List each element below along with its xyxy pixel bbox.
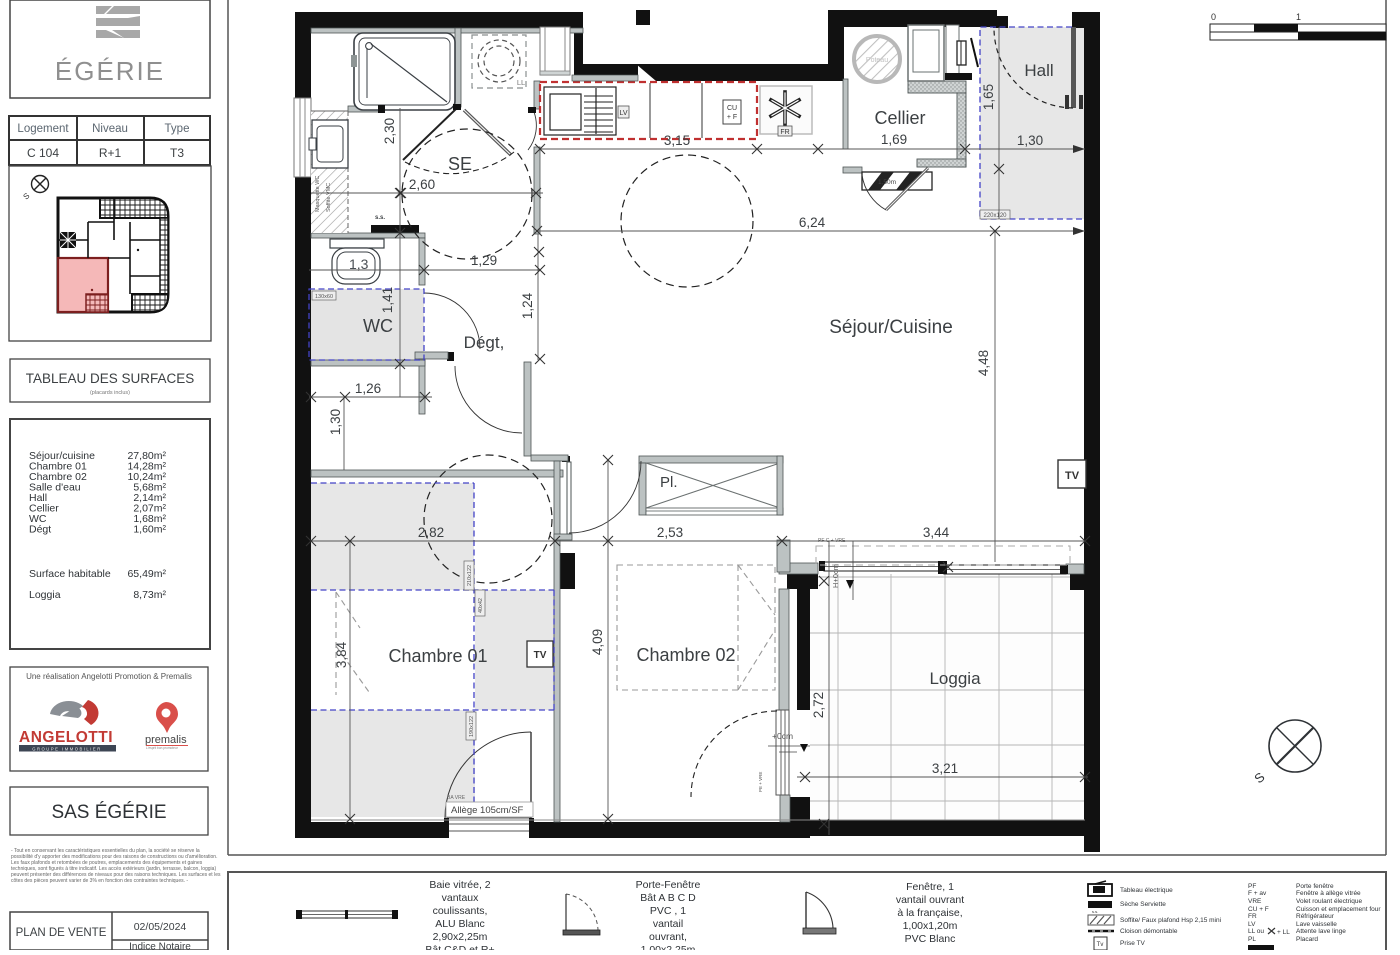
svg-text:ouvrant,: ouvrant, [649,931,687,943]
svg-text:4,48: 4,48 [976,350,991,376]
svg-text:Chambre 01: Chambre 01 [388,646,487,666]
svg-text:Pl.: Pl. [660,474,678,491]
svg-text:2,72: 2,72 [811,692,826,718]
svg-text:Lave vaisselle: Lave vaisselle [1296,921,1337,928]
svg-text:2,82: 2,82 [418,525,444,540]
svg-text:Tableau électrique: Tableau électrique [1120,887,1173,894]
svg-text:SE: SE [448,154,472,174]
svg-text:Prise TV: Prise TV [1120,940,1145,947]
svg-text:1,65: 1,65 [981,84,996,110]
svg-text:Soffite VMC: Soffite VMC [326,183,332,212]
svg-text:02/05/2024: 02/05/2024 [134,921,187,933]
svg-text:TV: TV [534,650,547,661]
svg-text:130x60: 130x60 [315,294,333,300]
svg-text:ALU Blanc: ALU Blanc [435,918,485,930]
svg-text:vantail ouvrant: vantail ouvrant [896,894,964,906]
svg-text:Poteau: Poteau [866,57,888,64]
svg-text:PF: PF [1248,883,1256,890]
svg-text:Placard: Placard [1296,936,1318,943]
svg-text:VRE: VRE [1248,898,1262,905]
svg-text:40x42: 40x42 [478,598,484,613]
svg-text:1,60m²: 1,60m² [133,524,166,536]
svg-text:PE + VRE: PE + VRE [758,772,763,792]
svg-text:Une réalisation Angelotti Prom: Une réalisation Angelotti Promotion & Pr… [26,672,192,681]
svg-text:T3: T3 [170,146,184,160]
svg-text:L'esprit bon promoteur: L'esprit bon promoteur [146,746,179,750]
svg-text:2,90x2,25m: 2,90x2,25m [433,931,488,943]
svg-text:GROUPE IMMOBILIER: GROUPE IMMOBILIER [32,747,101,752]
svg-text:ÉGÉRIE: ÉGÉRIE [55,56,165,86]
svg-text:Cellier: Cellier [874,108,925,128]
svg-text:H+0cm: H+0cm [831,564,840,588]
svg-text:Masquette WC: Masquette WC [315,176,321,212]
svg-text:Allège 105cm/SF: Allège 105cm/SF [451,805,524,816]
svg-text:Type: Type [165,123,190,135]
svg-text:PVC , 1: PVC , 1 [650,905,686,917]
svg-text:s.s.: s.s. [1092,909,1098,914]
svg-text:Logement: Logement [17,123,69,135]
svg-text:+0cm: +0cm [772,731,793,741]
svg-text:1,41: 1,41 [380,287,395,313]
svg-text:(placards inclus): (placards inclus) [90,390,130,396]
svg-text:4,09: 4,09 [590,629,605,655]
svg-text:vantaux: vantaux [442,892,480,904]
svg-text:CU: CU [727,105,737,112]
svg-text:côtes des pièces peuvent varie: côtes des pièces peuvent varier de 3% en… [11,878,188,884]
svg-text:+ LL: + LL [1277,929,1290,936]
svg-text:ANGELOTTI: ANGELOTTI [19,729,113,746]
svg-text:65,49m²: 65,49m² [127,568,166,580]
svg-text:SAS ÉGÉRIE: SAS ÉGÉRIE [51,802,166,823]
svg-text:Fenêtre, 1: Fenêtre, 1 [906,881,954,893]
svg-text:TABLEAU DES SURFACES: TABLEAU DES SURFACES [26,371,195,386]
svg-text:8,73m²: 8,73m² [133,589,166,601]
svg-text:Attente lave linge: Attente lave linge [1296,928,1346,935]
svg-text:Séjour/Cuisine: Séjour/Cuisine [829,317,953,338]
svg-text:3,84: 3,84 [334,641,349,668]
svg-text:3,44: 3,44 [923,525,950,540]
svg-text:1,00x1,20m: 1,00x1,20m [903,920,958,932]
svg-text:FR: FR [780,129,789,136]
svg-text:0: 0 [1211,12,1216,22]
svg-text:Fenêtre à allège vitrée: Fenêtre à allège vitrée [1296,890,1361,897]
svg-text:F + av: F + av [1248,890,1267,897]
svg-text:Chambre 02: Chambre 02 [636,645,735,665]
svg-text:1,26: 1,26 [355,381,381,396]
svg-text:PLAN DE VENTE: PLAN DE VENTE [16,927,107,939]
svg-text:TV: TV [1065,470,1080,482]
svg-text:PL: PL [1248,936,1256,943]
svg-text:220x120: 220x120 [983,213,1007,219]
svg-text:Dégt: Dégt [29,524,51,536]
svg-text:coulissants,: coulissants, [433,905,488,917]
svg-text:1,30: 1,30 [1017,133,1043,148]
svg-text:CU + F: CU + F [1248,906,1269,913]
svg-text:1,29: 1,29 [471,253,497,268]
svg-text:Porte fenêtre: Porte fenêtre [1296,883,1334,890]
svg-text:Hall: Hall [1024,61,1053,80]
svg-text:Indice Notaire: Indice Notaire [129,942,191,951]
svg-text:Dégt,: Dégt, [464,333,505,352]
svg-text:R+1: R+1 [99,146,122,160]
svg-text:Cloison démontable: Cloison démontable [1120,928,1178,935]
svg-text:210x122: 210x122 [467,565,473,586]
svg-text:Baie vitrée, 2: Baie vitrée, 2 [429,879,490,891]
svg-text:Tv: Tv [1097,942,1104,948]
svg-text:1,00x2,25m: 1,00x2,25m [641,944,696,950]
svg-text:2,53: 2,53 [657,525,683,540]
svg-text:Volet roulant électrique: Volet roulant électrique [1296,898,1363,905]
svg-text:2,60: 2,60 [409,177,435,192]
svg-text:Sèche Serviette: Sèche Serviette [1120,901,1166,908]
svg-text:s.s.: s.s. [375,215,385,221]
svg-text:190x122: 190x122 [469,716,475,737]
svg-text:2,30: 2,30 [382,118,397,144]
svg-text:Soffite/ Faux plafond Hsp 2,15: Soffite/ Faux plafond Hsp 2,15 mini [1120,917,1221,924]
svg-text:1,30: 1,30 [328,409,343,435]
svg-text:Bât A B C D: Bât A B C D [640,892,696,904]
svg-text:FR: FR [1248,913,1257,920]
svg-text:1,24: 1,24 [520,292,535,319]
svg-text:PVC Blanc: PVC Blanc [905,933,956,945]
svg-text:LV: LV [619,110,627,117]
svg-text:Porte-Fenêtre: Porte-Fenêtre [636,879,701,891]
svg-text:Surface habitable: Surface habitable [29,568,111,580]
svg-text:à la française,: à la française, [897,907,962,919]
svg-text:Cuisson et emplacement four: Cuisson et emplacement four [1296,906,1381,913]
svg-text:LL ou: LL ou [1248,928,1264,935]
svg-text:Bât C&D et R+: Bât C&D et R+ [425,944,494,950]
svg-text:6,24: 6,24 [799,215,826,230]
svg-text:LL: LL [517,78,525,87]
svg-text:3,21: 3,21 [932,761,958,776]
svg-text:Loggia: Loggia [929,669,981,688]
svg-text:BA VRE: BA VRE [447,795,466,801]
svg-text:Loggia: Loggia [29,589,61,601]
svg-text:C 104: C 104 [27,146,59,160]
svg-text:WC: WC [363,316,393,336]
svg-text:+ F: + F [727,114,737,121]
svg-text:Niveau: Niveau [92,123,128,135]
svg-text:1,69: 1,69 [881,132,907,147]
svg-text:vantail: vantail [653,918,683,930]
svg-text:premalis: premalis [145,734,187,746]
svg-text:1: 1 [1296,12,1301,22]
svg-text:1,50m: 1,50m [878,179,896,186]
svg-text:Réfrigérateur: Réfrigérateur [1296,913,1335,920]
svg-text:3,15: 3,15 [664,133,690,148]
svg-text:LV: LV [1248,921,1256,928]
